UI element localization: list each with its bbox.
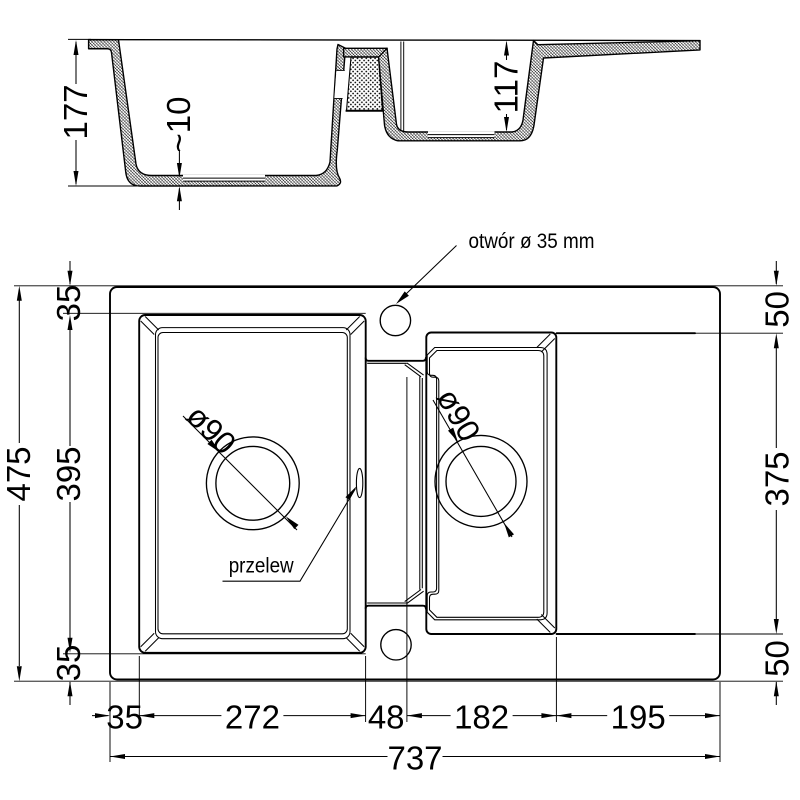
svg-text:35: 35 bbox=[106, 699, 143, 736]
svg-text:182: 182 bbox=[454, 699, 509, 736]
svg-text:~10: ~10 bbox=[160, 97, 197, 153]
svg-text:177: 177 bbox=[57, 84, 94, 139]
svg-text:737: 737 bbox=[387, 740, 442, 777]
svg-text:395: 395 bbox=[50, 446, 87, 501]
svg-text:otwór ø 35 mm: otwór ø 35 mm bbox=[469, 230, 595, 253]
svg-text:272: 272 bbox=[225, 699, 280, 736]
svg-text:50: 50 bbox=[759, 640, 796, 677]
svg-text:35: 35 bbox=[50, 285, 87, 322]
svg-text:375: 375 bbox=[759, 451, 796, 506]
svg-text:48: 48 bbox=[368, 699, 405, 736]
svg-text:50: 50 bbox=[759, 291, 796, 328]
svg-text:475: 475 bbox=[0, 446, 37, 501]
svg-text:117: 117 bbox=[488, 61, 525, 114]
svg-text:195: 195 bbox=[611, 699, 666, 736]
svg-text:35: 35 bbox=[50, 645, 87, 682]
svg-text:przelew: przelew bbox=[229, 555, 295, 578]
